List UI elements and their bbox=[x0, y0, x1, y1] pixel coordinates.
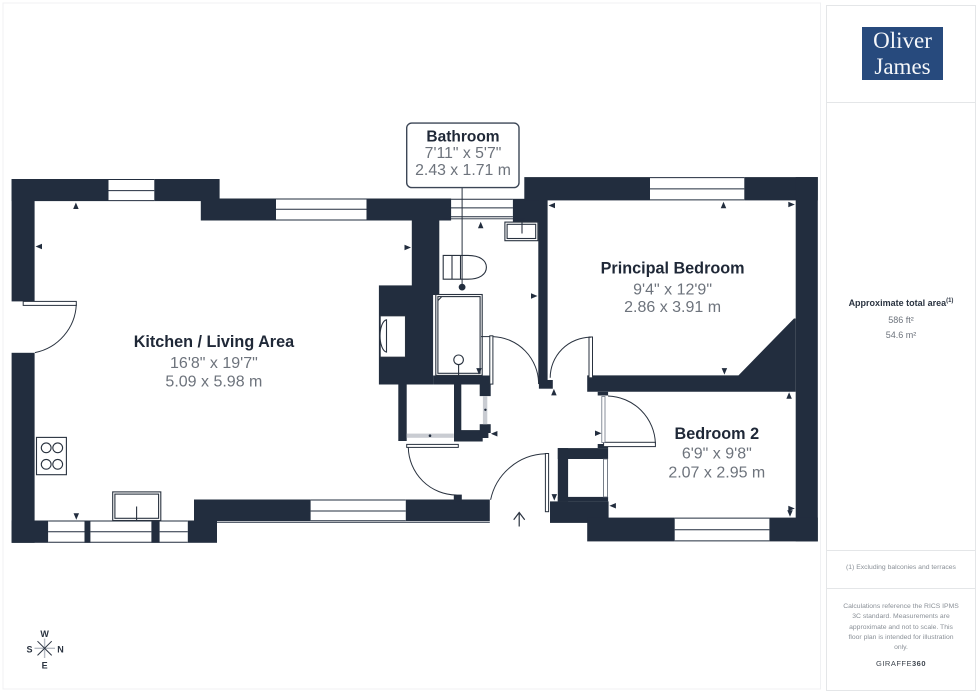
svg-text:Bathroom: Bathroom bbox=[426, 129, 499, 146]
svg-text:16'8" x 19'7": 16'8" x 19'7" bbox=[170, 355, 258, 372]
svg-text:Bedroom 2: Bedroom 2 bbox=[675, 425, 760, 443]
svg-text:2.86 x 3.91 m: 2.86 x 3.91 m bbox=[624, 299, 721, 316]
svg-text:9'4" x 12'9": 9'4" x 12'9" bbox=[633, 282, 712, 299]
svg-text:5.09 x 5.98 m: 5.09 x 5.98 m bbox=[165, 373, 262, 390]
svg-text:Principal Bedroom: Principal Bedroom bbox=[601, 260, 745, 278]
svg-text:2.43 x 1.71 m: 2.43 x 1.71 m bbox=[415, 162, 511, 179]
svg-text:E: E bbox=[42, 661, 48, 671]
svg-text:6'9" x 9'8": 6'9" x 9'8" bbox=[682, 445, 752, 462]
svg-text:W: W bbox=[40, 629, 49, 639]
svg-text:S: S bbox=[26, 645, 32, 655]
svg-text:7'11" x 5'7": 7'11" x 5'7" bbox=[425, 145, 502, 162]
svg-text:Kitchen / Living Area: Kitchen / Living Area bbox=[134, 333, 295, 351]
svg-text:2.07 x 2.95 m: 2.07 x 2.95 m bbox=[668, 465, 765, 482]
svg-text:N: N bbox=[57, 645, 64, 655]
